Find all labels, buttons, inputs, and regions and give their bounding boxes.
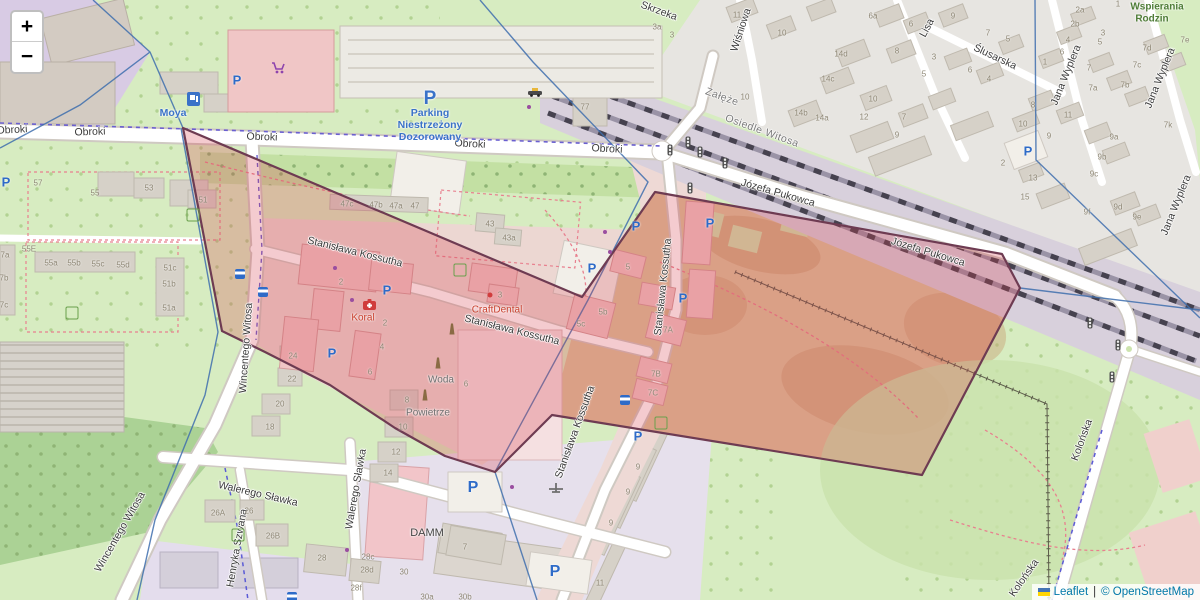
ukraine-flag-icon [1038, 588, 1050, 596]
boundary-overlay-polygon[interactable] [0, 0, 1200, 600]
zoom-control: + − [10, 10, 44, 74]
attribution-separator: | [1093, 586, 1096, 598]
attribution-bar: Leaflet | © OpenStreetMap [1032, 584, 1200, 600]
zoom-out-button[interactable]: − [12, 42, 42, 72]
zoom-in-button[interactable]: + [12, 12, 42, 42]
leaflet-link[interactable]: Leaflet [1054, 586, 1089, 598]
openstreetmap-link[interactable]: © OpenStreetMap [1101, 586, 1194, 598]
map-canvas[interactable]: ObrokiObrokiObrokiObrokiObrokiStanisława… [0, 0, 1200, 600]
